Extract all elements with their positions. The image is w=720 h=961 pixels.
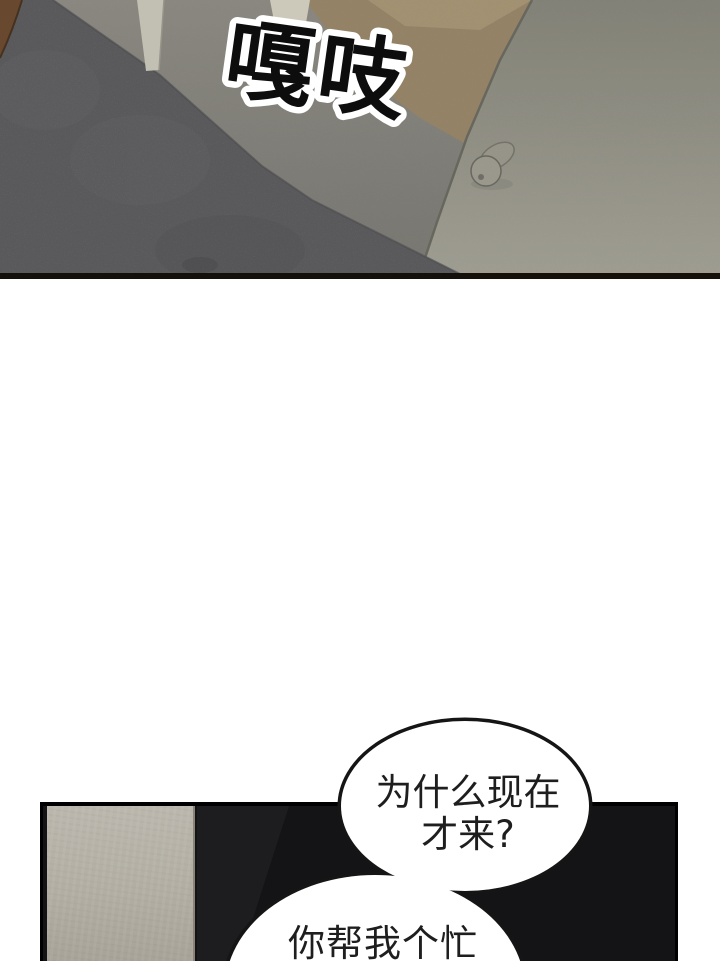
bubble-top-text-line1: 为什么现在 [376, 771, 561, 814]
speech-bubbles: 为什么现在 才来? 你帮我个忙 [0, 700, 720, 961]
comic-page: 嘎吱 为什么现在 才来? 你帮我个忙 [0, 0, 720, 961]
panel-door-scene: 嘎吱 [0, 0, 720, 279]
bubble-top-text-line2: 才来? [421, 813, 515, 856]
bubble-bottom-text-line1: 你帮我个忙 [288, 922, 478, 961]
panel-border-bottom [0, 273, 720, 279]
